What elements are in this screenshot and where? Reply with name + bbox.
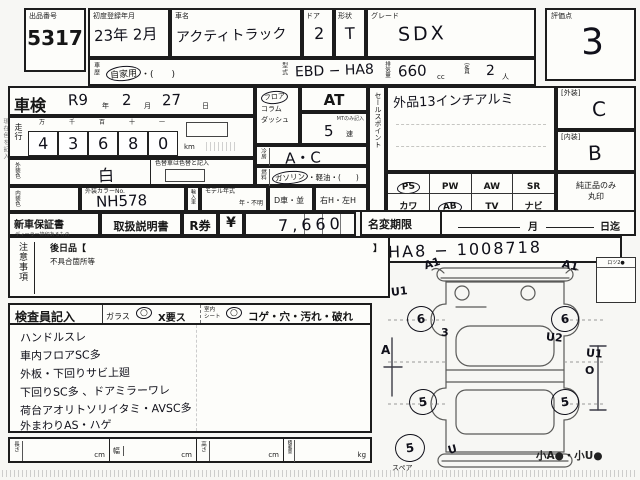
- car-name-value: アクティトラック: [176, 23, 287, 47]
- mileage-digit-cell: 6: [88, 131, 118, 156]
- inspector-box: 検査員記入 ガラス ○ X要ス 室内 シート ○ コゲ・穴・汚れ・破れ ハンドル…: [8, 303, 372, 433]
- first-registration-label: 初度登録年月: [93, 12, 168, 20]
- mileage-digit: 0: [158, 134, 169, 153]
- load-unit: kg: [358, 451, 367, 459]
- car-name-box: 車名 アクティトラック: [170, 8, 302, 58]
- seat-circled-mark: ○: [226, 306, 243, 319]
- score-value: 3: [580, 22, 604, 64]
- history-label: 車歴: [92, 62, 99, 84]
- inspector-note: 外まわりAS・ハゲ: [20, 416, 112, 434]
- capacity-unit: 人: [502, 73, 509, 81]
- sales-point-label: セールスポイント: [373, 92, 383, 210]
- seat-options: コゲ・穴・汚れ・破れ: [248, 309, 353, 324]
- height-unit: cm: [268, 451, 279, 459]
- damage-mark-right-side: U1: [585, 346, 603, 360]
- body-shape-label: 形状: [338, 12, 364, 20]
- later-items-close: 】: [373, 241, 382, 254]
- name-change-box: 名変期限 月 日迄: [360, 210, 636, 236]
- cautions-label: 注意事項: [16, 242, 35, 294]
- displacement-unit: cc: [437, 73, 445, 81]
- width-unit: cm: [181, 451, 192, 459]
- mileage-label: 走行: [13, 123, 24, 155]
- gears-value: 5: [324, 122, 334, 140]
- header-divider: [200, 305, 201, 323]
- manual-box: 取扱説明書: [100, 212, 182, 236]
- equipment-cell-ps: PS(パワステ): [388, 174, 430, 194]
- damage-mark-left-top: U1: [390, 284, 408, 299]
- equipment-code-sr: SR: [527, 183, 540, 193]
- mileage-fineprint: [206, 142, 238, 151]
- shaken-label: 車検: [14, 92, 46, 116]
- later-items-open: 後日品【: [50, 241, 86, 254]
- glass-options: X要ス: [158, 309, 186, 324]
- interior-color-label: 内装色: [13, 190, 21, 212]
- fuel-options: ガソリン・軽油・( ): [272, 171, 359, 184]
- transmission-box: AT: [300, 86, 368, 112]
- recycle-ticket-label: R券: [184, 217, 216, 234]
- notes-column-divider: [196, 325, 197, 431]
- model-year-box: モデル年式 年・不明: [200, 186, 268, 212]
- capacity-label: 定員: [462, 63, 470, 85]
- damage-mark-left-side: A: [381, 343, 390, 357]
- genuine-parts-note-line2: 丸印: [558, 191, 634, 202]
- fuel-label: 燃料: [259, 169, 270, 186]
- capacity-value: 2: [486, 63, 495, 79]
- exterior-color-box: 外装色 白 色替車は色替と記入: [8, 158, 255, 186]
- mileage-digit-cell: 8: [118, 131, 148, 156]
- model-year-value: 年・不明: [239, 201, 263, 208]
- equipment-grid: PS(パワステ) PW(パワーウインド) AW(アルミホイル) SR(サンルーフ…: [386, 172, 556, 212]
- displacement-value: 660: [398, 62, 427, 81]
- history-circled-value: 自家用: [105, 65, 141, 83]
- shift-option-dash: ダッシュ: [261, 116, 289, 124]
- interior-grade-value: B: [588, 141, 603, 165]
- dimensions-row: 長さ cm 幅 cm 高さ cm 積載量 kg: [8, 437, 372, 463]
- seat-label-line1: 室内: [204, 307, 215, 313]
- genuine-parts-note-line1: 純正品のみ: [558, 180, 634, 191]
- interior-grade-box: [内装] B: [556, 130, 636, 172]
- chassis-number-box: 車台No HA8 − 1008718: [360, 236, 622, 263]
- inspector-label: 検査員記入: [15, 308, 75, 325]
- equipment-cell-pw: PW(パワーウインド): [430, 174, 472, 194]
- mileage-digit-cell: 4: [28, 131, 58, 156]
- aircon-label: 冷房: [259, 148, 270, 166]
- width-label: 幅: [113, 446, 124, 456]
- currency-symbol: ¥: [220, 215, 242, 231]
- height-section: 高さ cm: [197, 439, 284, 461]
- color-number-box: 外装カラーNo. NH578: [80, 186, 186, 212]
- length-section: 長さ cm: [10, 439, 110, 461]
- fuel-circled-value: ガソリン: [272, 169, 309, 185]
- grade-box: グレード SDX: [366, 8, 536, 58]
- damage-mark-cab-left: 3: [441, 326, 449, 339]
- load-label: 積載量: [286, 440, 295, 462]
- name-change-label: 名変期限: [362, 212, 442, 234]
- color-change-section: 色替車は色替と記入: [150, 160, 255, 184]
- mileage-digit: 3: [68, 134, 79, 153]
- aircon-box: 冷房 A・C: [255, 145, 368, 166]
- mileage-digit: 6: [98, 134, 109, 153]
- shaken-day-value: 27: [162, 91, 182, 110]
- shaken-month-value: 2: [122, 91, 132, 109]
- equipment-code-pw: PW: [442, 183, 459, 193]
- interior-grade-label: [内装]: [561, 133, 634, 141]
- shift-option-column: コラム: [261, 105, 282, 113]
- mileage-digit: 4: [38, 134, 49, 153]
- name-change-month-unit: 月: [528, 218, 538, 233]
- interior-color-box: 内装色: [8, 186, 80, 212]
- glass-label: ガラス: [106, 311, 130, 322]
- inspector-note: ハンドルスレ: [20, 328, 86, 345]
- header-divider: [102, 305, 103, 323]
- shaken-month-unit: 月: [144, 102, 151, 110]
- inspector-note: 下回りSC多 、ドアミラーワレ: [20, 382, 170, 401]
- sales-point-value: 外品13インチアルミ: [393, 88, 514, 111]
- transmission-value: AT: [302, 91, 366, 109]
- exterior-grade-box: [外装] C: [556, 86, 636, 130]
- exterior-grade-label: [外装]: [561, 89, 634, 97]
- name-change-month-blank: [458, 216, 520, 228]
- auction-sheet: 現在色を記入 出品番号 5317 初度登録年月 23年 2月 車名 アクティトラ…: [0, 0, 640, 480]
- history-row: 車歴 自家用・( ) 型式 EBD − HA8 排気量 660 cc 定員 2 …: [88, 58, 536, 86]
- grade-value: SDX: [398, 22, 447, 46]
- equipment-cell-sr: SR(サンルーフ): [513, 174, 554, 194]
- load-section: 積載量 kg: [284, 439, 370, 461]
- door-value: 2: [314, 24, 325, 43]
- shaken-year-unit: 年: [102, 102, 109, 110]
- mileage-header-0: 万: [39, 120, 45, 127]
- chassis-number-value: HA8 − 1008718: [388, 237, 543, 261]
- import-car-label: 輸入車: [190, 189, 197, 212]
- door-box: ドア 2: [302, 8, 334, 58]
- score-box: 評価点 3: [545, 8, 636, 81]
- shift-position-box: フロア コラム ダッシュ: [255, 86, 300, 145]
- height-label: 高さ: [199, 441, 210, 461]
- currency-box: ¥: [218, 212, 244, 236]
- mileage-digit-cell: 3: [58, 131, 88, 156]
- score-label: 評価点: [551, 12, 634, 20]
- lot-number-value: 5317: [26, 26, 84, 50]
- name-change-day-blank: [546, 216, 594, 228]
- recycle-amount-box: 7,660: [244, 212, 356, 236]
- shaken-box: 車検 R9 年 2 月 27 日: [8, 86, 255, 116]
- defects-label: 不具合箇所等: [50, 256, 95, 267]
- first-registration-value: 23年 2月: [94, 23, 158, 46]
- name-change-until: 日迄: [600, 218, 620, 233]
- mileage-digit: 8: [128, 134, 139, 153]
- color-number-value: NH578: [96, 191, 148, 211]
- mileage-header-3: 十: [129, 120, 135, 127]
- shaken-year-value: R9: [68, 91, 89, 110]
- body-shape-box: 形状 T: [334, 8, 366, 58]
- mileage-box: 走行 万 千 百 十 一 4 3 6 8 0 km: [8, 116, 255, 158]
- equipment-code-aw: AW: [484, 183, 501, 193]
- door-label: ドア: [306, 12, 332, 20]
- cautions-box: 注意事項 後日品【 】 不具合箇所等: [8, 236, 390, 298]
- model-code-value: EBD − HA8: [295, 62, 374, 81]
- sales-point-ruled-line: [396, 124, 546, 125]
- equipment-row-1: PS(パワステ) PW(パワーウインド) AW(アルミホイル) SR(サンルーフ…: [388, 174, 554, 194]
- recycle-ticket-box: R券: [182, 212, 218, 236]
- domestic-car-box: D車・並: [268, 186, 314, 212]
- mileage-header-1: 千: [69, 120, 75, 127]
- mileage-header-2: 百: [99, 120, 105, 127]
- mileage-header-4: 一: [159, 120, 165, 127]
- color-change-note: 色替車は色替と記入: [155, 161, 255, 168]
- genuine-parts-note-box: 純正品のみ 丸印: [556, 172, 636, 212]
- seat-label: 室内 シート: [204, 307, 221, 320]
- inspector-header: 検査員記入 ガラス ○ X要ス 室内 シート ○ コゲ・穴・汚れ・破れ: [10, 305, 370, 325]
- grade-label: グレード: [371, 12, 534, 20]
- manual-label: 取扱説明書: [102, 218, 180, 234]
- exterior-color-label: 外装色: [13, 162, 21, 186]
- shaken-day-unit: 日: [202, 102, 209, 110]
- warranty-label: 新車保証書: [14, 216, 98, 231]
- mileage-extra-box: [186, 122, 228, 137]
- exterior-grade-value: C: [592, 97, 607, 121]
- car-name-label: 車名: [175, 12, 300, 20]
- exterior-color-value: 白: [98, 162, 115, 187]
- mileage-unit: km: [184, 143, 195, 151]
- color-change-entry-box: [165, 169, 205, 182]
- scan-artifact-strip: [2, 470, 638, 477]
- length-unit: cm: [94, 451, 105, 459]
- length-label: 長さ: [12, 441, 23, 461]
- model-year-label: モデル年式: [205, 189, 235, 196]
- handle-position-label: 右H・左H: [320, 196, 356, 205]
- first-registration-box: 初度登録年月 23年 2月: [88, 8, 170, 58]
- damage-mark-right-lower: O: [585, 364, 594, 377]
- import-car-box: 輸入車: [186, 186, 200, 212]
- equipment-cell-aw: AW(アルミホイル): [472, 174, 514, 194]
- width-section: 幅 cm: [110, 439, 197, 461]
- damage-mark-cab-right: U2: [545, 330, 563, 345]
- domestic-car-label: D車・並: [274, 196, 304, 205]
- history-value: 自家用・( ): [106, 66, 175, 81]
- gears-unit: 速: [346, 130, 353, 138]
- mileage-digit-cell: 0: [148, 131, 178, 156]
- lot-number-box: 出品番号 5317: [24, 8, 86, 72]
- mt-note: MTのみ記入: [337, 115, 364, 122]
- sales-point-ruled-line: [396, 146, 546, 147]
- seat-label-line2: シート: [204, 314, 221, 320]
- lot-number-label: 出品番号: [29, 12, 84, 20]
- glass-circled-mark: ○: [136, 306, 153, 319]
- shift-option-floor: フロア: [260, 90, 288, 105]
- inspector-note: 外板・下回りサビ上廻: [20, 364, 130, 382]
- model-code-label: 型式: [280, 62, 287, 84]
- handle-position-box: 右H・左H: [314, 186, 368, 212]
- fuel-box: 燃料 ガソリン・軽油・( ): [255, 166, 368, 186]
- sales-point-box: 外品13インチアルミ: [386, 86, 556, 172]
- fuel-rest: ・軽油・( ): [308, 173, 359, 182]
- small-damage-footnote: 小A●・小U●: [536, 448, 602, 463]
- mt-gears-box: MTのみ記入 5 速: [300, 112, 368, 145]
- recycle-amount-value: 7,660: [278, 214, 344, 235]
- body-shape-value: T: [345, 24, 355, 43]
- inspector-note: 車内フロアSC多: [20, 346, 101, 363]
- sales-point-bar: セールスポイント: [368, 86, 386, 212]
- history-rest: ・( ): [141, 70, 175, 80]
- warranty-box: 新車保証書 ディーラー捺印あるもの: [8, 212, 100, 236]
- displacement-label: 排気量: [383, 61, 391, 87]
- equipment-code-ps: PS: [396, 181, 420, 194]
